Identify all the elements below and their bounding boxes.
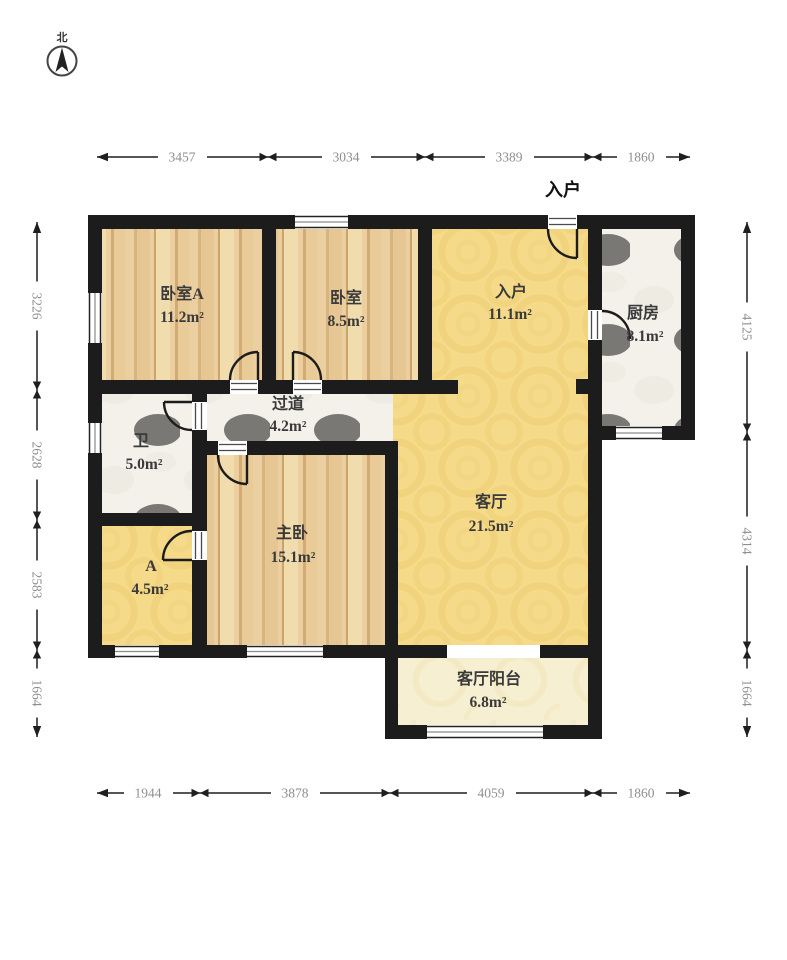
wall-bedrooms-divider: [262, 229, 276, 380]
wall-bath-bottom: [102, 513, 192, 526]
room-name-bedroom-a: 卧室A: [160, 284, 204, 303]
dim-bottom-4: 1860: [628, 786, 655, 801]
wall-living-balcony-b: [540, 645, 602, 658]
compass-north-label: 北: [57, 30, 68, 44]
room-area-master: 15.1m²: [271, 549, 316, 566]
floor-bedroom-a: [102, 229, 262, 380]
wall-bedroom-right: [418, 229, 432, 380]
wall-right-long: [588, 215, 602, 739]
floor-plan-svg: 3457 3034 3389 1860 1944 3878 4059 1860: [0, 0, 787, 960]
room-name-bathroom: 卫: [133, 433, 149, 450]
room-name-kitchen: 厨房: [627, 303, 659, 322]
dim-top-2: 3034: [333, 150, 360, 165]
dim-right-3: 1664: [740, 680, 755, 707]
room-name-bedroom: 卧室: [330, 288, 362, 307]
dim-right-1: 4125: [740, 314, 755, 341]
window-master-bottom: [247, 645, 323, 658]
window-bathroom-left: [88, 423, 102, 453]
window-bedroom-a-left: [88, 293, 102, 343]
room-area-bedroom-a: 11.2m²: [160, 309, 204, 326]
dim-bottom-2: 3878: [282, 786, 309, 801]
window-kitchen-bottom: [616, 426, 662, 440]
room-name-balcony: 客厅阳台: [457, 669, 521, 688]
room-area-kitchen: 8.1m²: [627, 328, 664, 345]
dim-bottom-1: 1944: [135, 786, 162, 801]
floor-plan-page: 3457 3034 3389 1860 1944 3878 4059 1860: [0, 0, 787, 960]
wall-master-right: [385, 441, 398, 658]
window-room-a-bottom: [115, 645, 159, 658]
compass: 北: [48, 30, 77, 76]
wall-stub-left: [432, 380, 458, 394]
dim-right-2: 4314: [740, 528, 755, 555]
room-name-master: 主卧: [276, 523, 308, 542]
room-area-hallway: 4.2m²: [270, 418, 307, 435]
wall-stub-right: [576, 379, 588, 394]
dim-top-1: 3457: [169, 150, 196, 165]
room-area-room-a: 4.5m²: [132, 581, 169, 598]
dim-top-3: 3389: [496, 150, 523, 165]
room-name-living: 客厅: [475, 492, 507, 511]
room-area-entry: 11.1m²: [488, 306, 532, 323]
dim-top-4: 1860: [628, 150, 655, 165]
wall-balcony-left: [385, 645, 398, 739]
wall-living-balcony-a: [398, 645, 447, 658]
entry-marker-label: 入户: [545, 179, 581, 200]
room-name-hallway: 过道: [272, 394, 304, 413]
room-area-bedroom: 8.5m²: [328, 313, 365, 330]
floor-balcony: [397, 658, 588, 725]
wall-kitchen-right: [681, 215, 695, 440]
dim-left-1: 3226: [30, 293, 45, 320]
window-balcony-bottom: [427, 725, 543, 739]
window-bedroom-top: [295, 215, 348, 229]
dim-left-4: 1664: [30, 680, 45, 707]
room-area-balcony: 6.8m²: [470, 694, 507, 711]
room-area-bathroom: 5.0m²: [126, 456, 163, 473]
wall-bedrooms-bottom: [88, 380, 432, 394]
dim-left-2: 2628: [30, 442, 45, 469]
room-name-entry: 入户: [495, 282, 527, 301]
room-area-living: 21.5m²: [469, 518, 514, 535]
room-name-room-a: A: [145, 558, 157, 575]
dim-left-3: 2583: [30, 572, 45, 599]
dim-bottom-3: 4059: [478, 786, 505, 801]
wall-top: [88, 215, 695, 229]
